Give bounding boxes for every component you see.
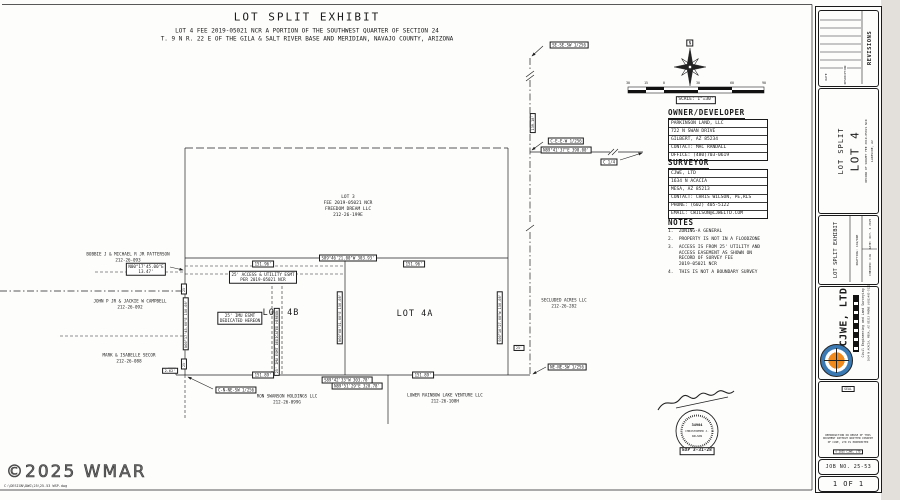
dim-offset-w2: 25' (181, 359, 187, 370)
notes-heading: NOTES (668, 218, 694, 229)
exhibit-date: DATE: OCT. 3 2025 (868, 219, 872, 250)
exhibit-block: LOT SPLIT EXHIBIT DRAFTING: CJW/DRE DATE… (818, 215, 879, 285)
exhibit-title: LOT SPLIT EXHIBIT (833, 222, 839, 278)
note-item: 3. ACCESS IS FROM 25' UTILITY AND ACCESS… (668, 245, 778, 268)
easement-line2: DEDICATED HEREON (220, 318, 260, 323)
owner-info: PARKINSON LAND, LLC 722 N SWAN DRIVE GIL… (668, 119, 768, 161)
surveyor-line: MESA, AZ 85213 (669, 186, 767, 194)
parcel-owner-secluded: SECLUDED ACRES LLC 212-26-282 (541, 297, 586, 308)
scale-tick: 90 (762, 81, 766, 85)
lot3-label: LOT 3 FEE 2019-05021 NCR FREEDOM DREAM L… (324, 195, 373, 219)
sheet-title: LOT SPLIT EXHIBIT (234, 11, 381, 24)
corner-ceew: C-E-E-W 1/256 (548, 138, 584, 145)
surveyor-line: 1634 N ACACIA (669, 178, 767, 186)
dim-bottom-bearing2: N89°51'29"E 328.78' (332, 383, 383, 390)
note-item: 2. PROPERTY IS NOT IN A FLOODZONE (668, 237, 778, 243)
lot4b-label: LOT 4B (263, 308, 300, 318)
sheet-subtitle-line1: LOT 4 FEE 2019-05021 NCR A PORTION OF TH… (175, 28, 439, 35)
dim-jog: 2.62' (162, 368, 178, 374)
firm-tagline: Civil Engineering and Land Surveying (861, 288, 865, 357)
surveyor-heading: SURVEYOR (668, 158, 709, 169)
north-label: N (686, 40, 693, 47)
corner-sese: SE-SE-SW 1/256 (550, 42, 589, 49)
owner-heading: OWNER/DEVELOPER (668, 108, 745, 119)
owner-line: 722 N SWAN DRIVE (669, 128, 767, 136)
project-sub1: RECORD OF SURVEY FEE 2019-05021 NCR (864, 119, 868, 182)
stamp-name2: WILSON (692, 434, 702, 438)
notes-list: 1. ZONING-A GENERAL 2. PROPERTY IS NOT I… (668, 229, 778, 278)
parcel-owner-patterson: BOBBIE J & MICHAEL R JR PATTERSON 212-26… (86, 251, 169, 262)
seal-disclaimer: REPRODUCTION OR REUSE OF THIS DOCUMENT W… (822, 434, 874, 444)
dim-length: 13.47' (128, 269, 163, 274)
stamp-number: 34904 (692, 423, 703, 427)
owner-name: SECLUDED ACRES LLC (541, 297, 586, 303)
dim-top-right: 151.96' (403, 261, 425, 268)
project-line2: LOT 4 (849, 131, 862, 172)
firm-address: 1634 N ACACIA, MESA, AZ 85213 PHONE (602… (868, 285, 871, 362)
scale-tick: 0 (663, 81, 665, 85)
owner-name: JOHN P JR & JACKIE W CAMPBELL (93, 298, 166, 304)
dim-top-bearing: S89°46'21.00"W 303.93' (319, 255, 377, 262)
dim-east-line: N89°41'37"E 398.00' (541, 147, 592, 154)
owner-line: GILBERT, AZ 85234 (669, 136, 767, 144)
dim-bottom-left: 151.89' (252, 372, 274, 379)
owner-name: RON SWANSON HOLDINGS LLC (257, 393, 318, 399)
easement-line2: PER 2019-05021 NCR (231, 277, 294, 282)
note-item: 4. THIS IS NOT A BOUNDARY SURVEY (668, 270, 778, 276)
dim-top-left: 151.96' (252, 261, 274, 268)
project-line1: LOT SPLIT (837, 128, 845, 175)
scale-tick: 60 (730, 81, 734, 85)
scale-label: SCALE: 1"=30' (676, 96, 716, 104)
exhibit-checked: CHECKED: CJW (868, 254, 872, 276)
drawing-filepath: C:\DESIGN\DWG\25\25-53 WSP.dwg (4, 484, 67, 488)
dim-west-short: N00°17'45.00"E 13.47' (126, 263, 166, 276)
note-item: 1. ZONING-A GENERAL (668, 229, 778, 235)
stamp-expiration: EXP 3-31-28 (680, 447, 715, 455)
owner-apn: 212-26-108H (407, 398, 483, 404)
lot3-apn: 212-26-199E (324, 213, 373, 219)
cjwe-logo (820, 344, 853, 377)
imu-easement-vertical-label: 25' IMU ESMT DEDICATED HEREON (274, 308, 280, 376)
owner-line: CONTACT: MAC RANDALL (669, 145, 767, 153)
scale-tick: 30 (696, 81, 700, 85)
owner-line: PARKINSON LAND, LLC (669, 120, 767, 128)
revisions-date-col: DATE (824, 73, 828, 80)
corner-nene: NE-NE-SW 1/256 (548, 364, 587, 371)
surveyor-line: PHONE: (602) 405-5122 (669, 203, 767, 211)
owner-name: LOWER RAINBOW LAKE VENTURE LLC (407, 392, 483, 398)
seal-block: SEAL REPRODUCTION OR REUSE OF THIS DOCUM… (818, 381, 879, 458)
scale-tick: 15 (644, 81, 648, 85)
sheet-subtitle-line2: T. 9 N R. 22 E OF THE GILA & SALT RIVER … (161, 36, 454, 43)
revisions-desc-col: DESCRIPTION (843, 66, 847, 85)
dim-mid-side: N00°08'31.00"E 150.08' (337, 292, 343, 345)
owner-apn: 212-26-282 (541, 303, 586, 309)
scale-tick: 30 (626, 81, 630, 85)
owner-name: BOBBIE J & MICHAEL R JR PATTERSON (86, 251, 169, 257)
access-easement-label: 25' ACCESS & UTILITY ESMT PER 2019-05021… (229, 271, 297, 284)
dim-north-length: 139.18' (530, 113, 536, 133)
parcel-owner-rainbow: LOWER RAINBOW LAKE VENTURE LLC 212-26-10… (407, 392, 483, 403)
owner-apn: 212-26-099G (257, 399, 318, 405)
revisions-block: REVISIONS DATE DESCRIPTION (818, 10, 879, 87)
stamp-name1: CHRISTOPHER J. (685, 429, 709, 433)
dim-west-side: N00°17'45.00"E 150.08' (183, 298, 189, 351)
firm-name: CJWE, LTD (839, 288, 850, 347)
project-sub2: LAKESIDE, AZ (870, 140, 874, 162)
parcel-owner-campbell: JOHN P JR & JACKIE W CAMPBELL 212-26-092 (93, 298, 166, 309)
dim-offset-e: 25' (514, 345, 525, 351)
sheet-number: 1 OF 1 (833, 480, 864, 488)
exhibit-drafting: DRAFTING: CJW/DRE (855, 235, 859, 266)
parcel-owner-secor: MARK & ISABELLE SECOR 212-26-088 (103, 352, 156, 363)
imu-easement-label: 25' IMU ESMT DEDICATED HEREON (217, 312, 262, 325)
owner-apn: 212-26-088 (103, 358, 156, 364)
dim-bottom-right: 151.89' (412, 372, 434, 379)
surveyor-line: CJWE, LTD (669, 170, 767, 178)
owner-apn: 212-26-092 (93, 304, 166, 310)
watermark-copyright: ©2025 WMAR (6, 462, 147, 482)
dim-offset-w1: 25' (181, 284, 187, 295)
project-block: LOT SPLIT LOT 4 RECORD OF SURVEY FEE 201… (818, 88, 879, 214)
dim-east-side: S00°10'27.00"W 150.08' (497, 292, 503, 345)
surveyor-info: CJWE, LTD 1634 N ACACIA MESA, AZ 85213 C… (668, 169, 768, 219)
corner-c14: C 1/4 (600, 159, 617, 166)
firm-scalebar-graphic (853, 295, 859, 352)
job-number-block: JOB NO. 25-53 (818, 459, 879, 475)
job-number: JOB NO. 25-53 (826, 464, 872, 470)
surveyor-line: CONTACT: CHRIS WILSON, PE,RLS (669, 195, 767, 203)
signature (658, 391, 734, 410)
sheet-canvas: LOT SPLIT EXHIBIT LOT 4 FEE 2019-05021 N… (0, 0, 900, 500)
seal-label: SEAL (842, 386, 855, 392)
seal-copyright: © 2025 CJWE, LTD (833, 449, 863, 454)
revisions-title: REVISIONS (867, 31, 873, 65)
parcel-owner-swanson: RON SWANSON HOLDINGS LLC 212-26-099G (257, 393, 318, 404)
sheet-number-block: 1 OF 1 (818, 476, 879, 492)
owner-name: MARK & ISABELLE SECOR (103, 352, 156, 358)
lot4a-label: LOT 4A (397, 309, 434, 319)
corner-cnne: C-N-NE-SW 1/256 (215, 387, 256, 394)
